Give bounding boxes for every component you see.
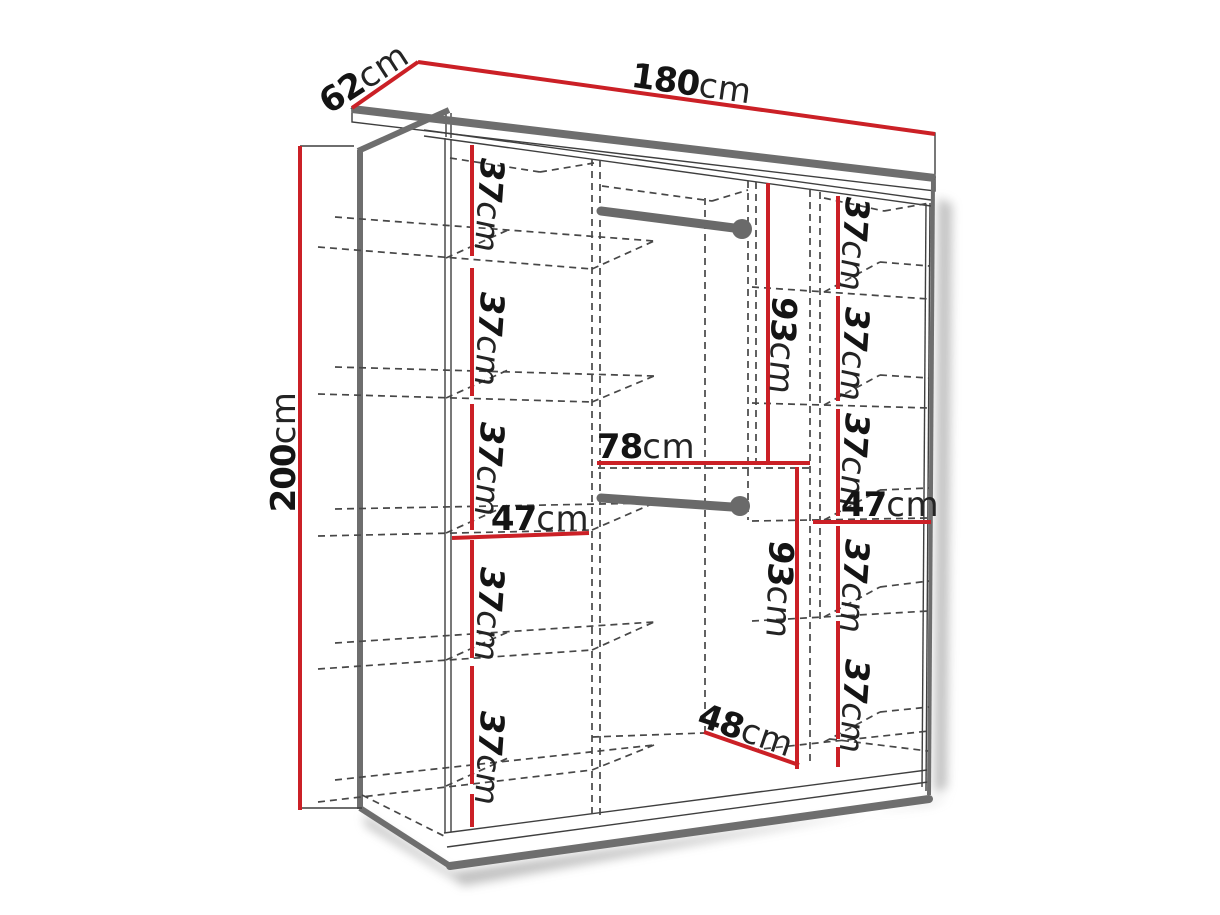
wardrobe-dimension-diagram: 180cm 62cm 200cm 37cm 37cm 37cm 37cm 37c… xyxy=(0,0,1220,915)
bottom-hanging-rail xyxy=(601,496,750,516)
middle-bottom-width-label: 48cm xyxy=(693,696,799,766)
top-hanging-rail xyxy=(601,211,752,239)
left-shelf-gap-label-5: 37cm xyxy=(467,707,512,810)
top-hanging-height-label: 93cm xyxy=(760,294,803,398)
right-shelf-gap-label-2: 37cm xyxy=(832,303,877,406)
bottom-hanging-height-label: 93cm xyxy=(757,538,800,642)
right-shelf-gap-label-5: 37cm xyxy=(832,655,877,758)
height-dimension-label: 200cm xyxy=(264,392,304,513)
right-shelf-gap-label-4: 37cm xyxy=(832,535,877,638)
right-shelf-gap-label-1: 37cm xyxy=(832,193,877,296)
left-column-width-label: 47cm xyxy=(491,499,589,539)
width-dimension-label: 180cm xyxy=(629,56,754,112)
diagram-canvas: 180cm 62cm 200cm 37cm 37cm 37cm 37cm 37c… xyxy=(0,0,1220,915)
right-column-width-label: 47cm xyxy=(841,485,939,525)
left-shelf-gap-label-1: 37cm xyxy=(467,154,512,257)
left-shelf-gap-label-2: 37cm xyxy=(467,288,512,391)
left-shelf-gap-label-4: 37cm xyxy=(467,563,512,666)
middle-top-width-label: 78cm xyxy=(597,427,695,467)
